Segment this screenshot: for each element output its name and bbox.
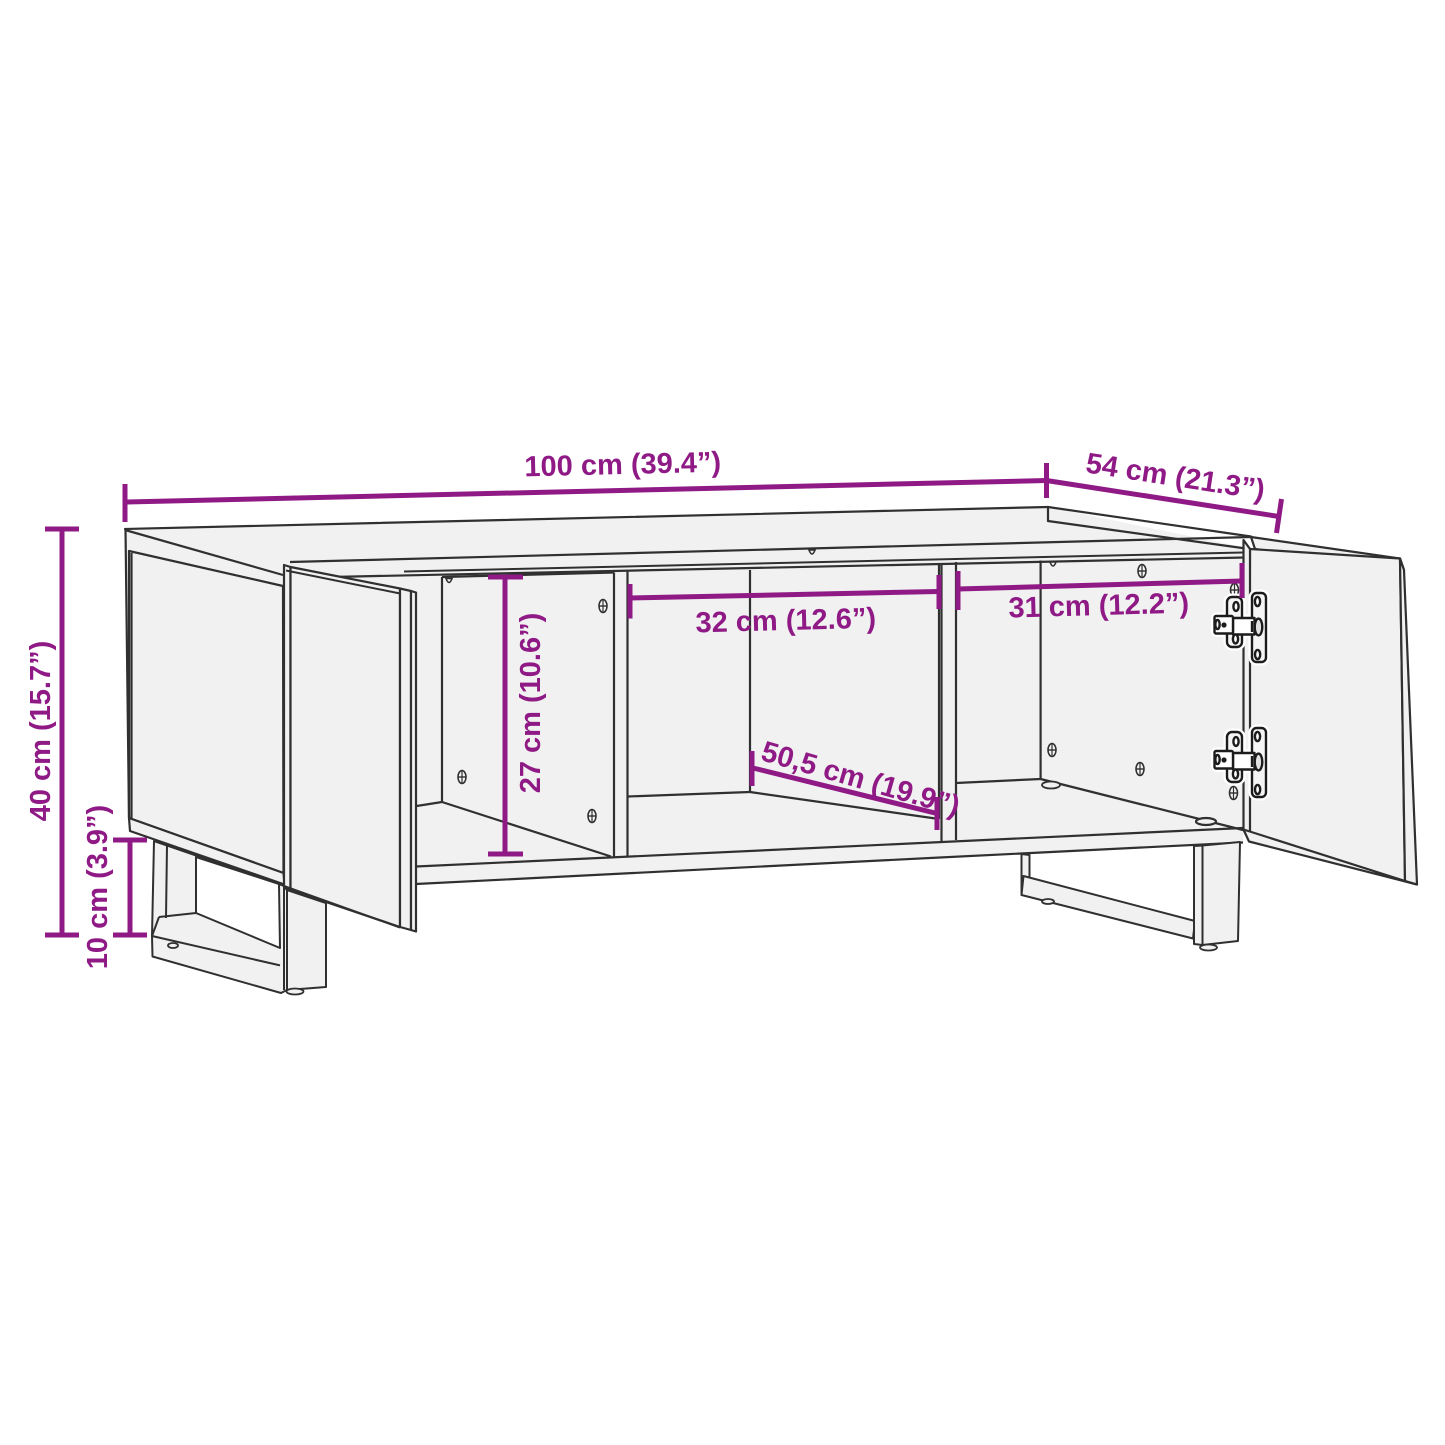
svg-text:10 cm (3.9”): 10 cm (3.9”) [82,805,114,969]
svg-text:100 cm (39.4”): 100 cm (39.4”) [524,447,721,484]
svg-text:32 cm (12.6”): 32 cm (12.6”) [695,603,876,640]
svg-text:40 cm (15.7”): 40 cm (15.7”) [25,641,57,822]
svg-text:27 cm (10.6”): 27 cm (10.6”) [515,613,547,794]
svg-text:31 cm (12.2”): 31 cm (12.2”) [1008,587,1189,624]
